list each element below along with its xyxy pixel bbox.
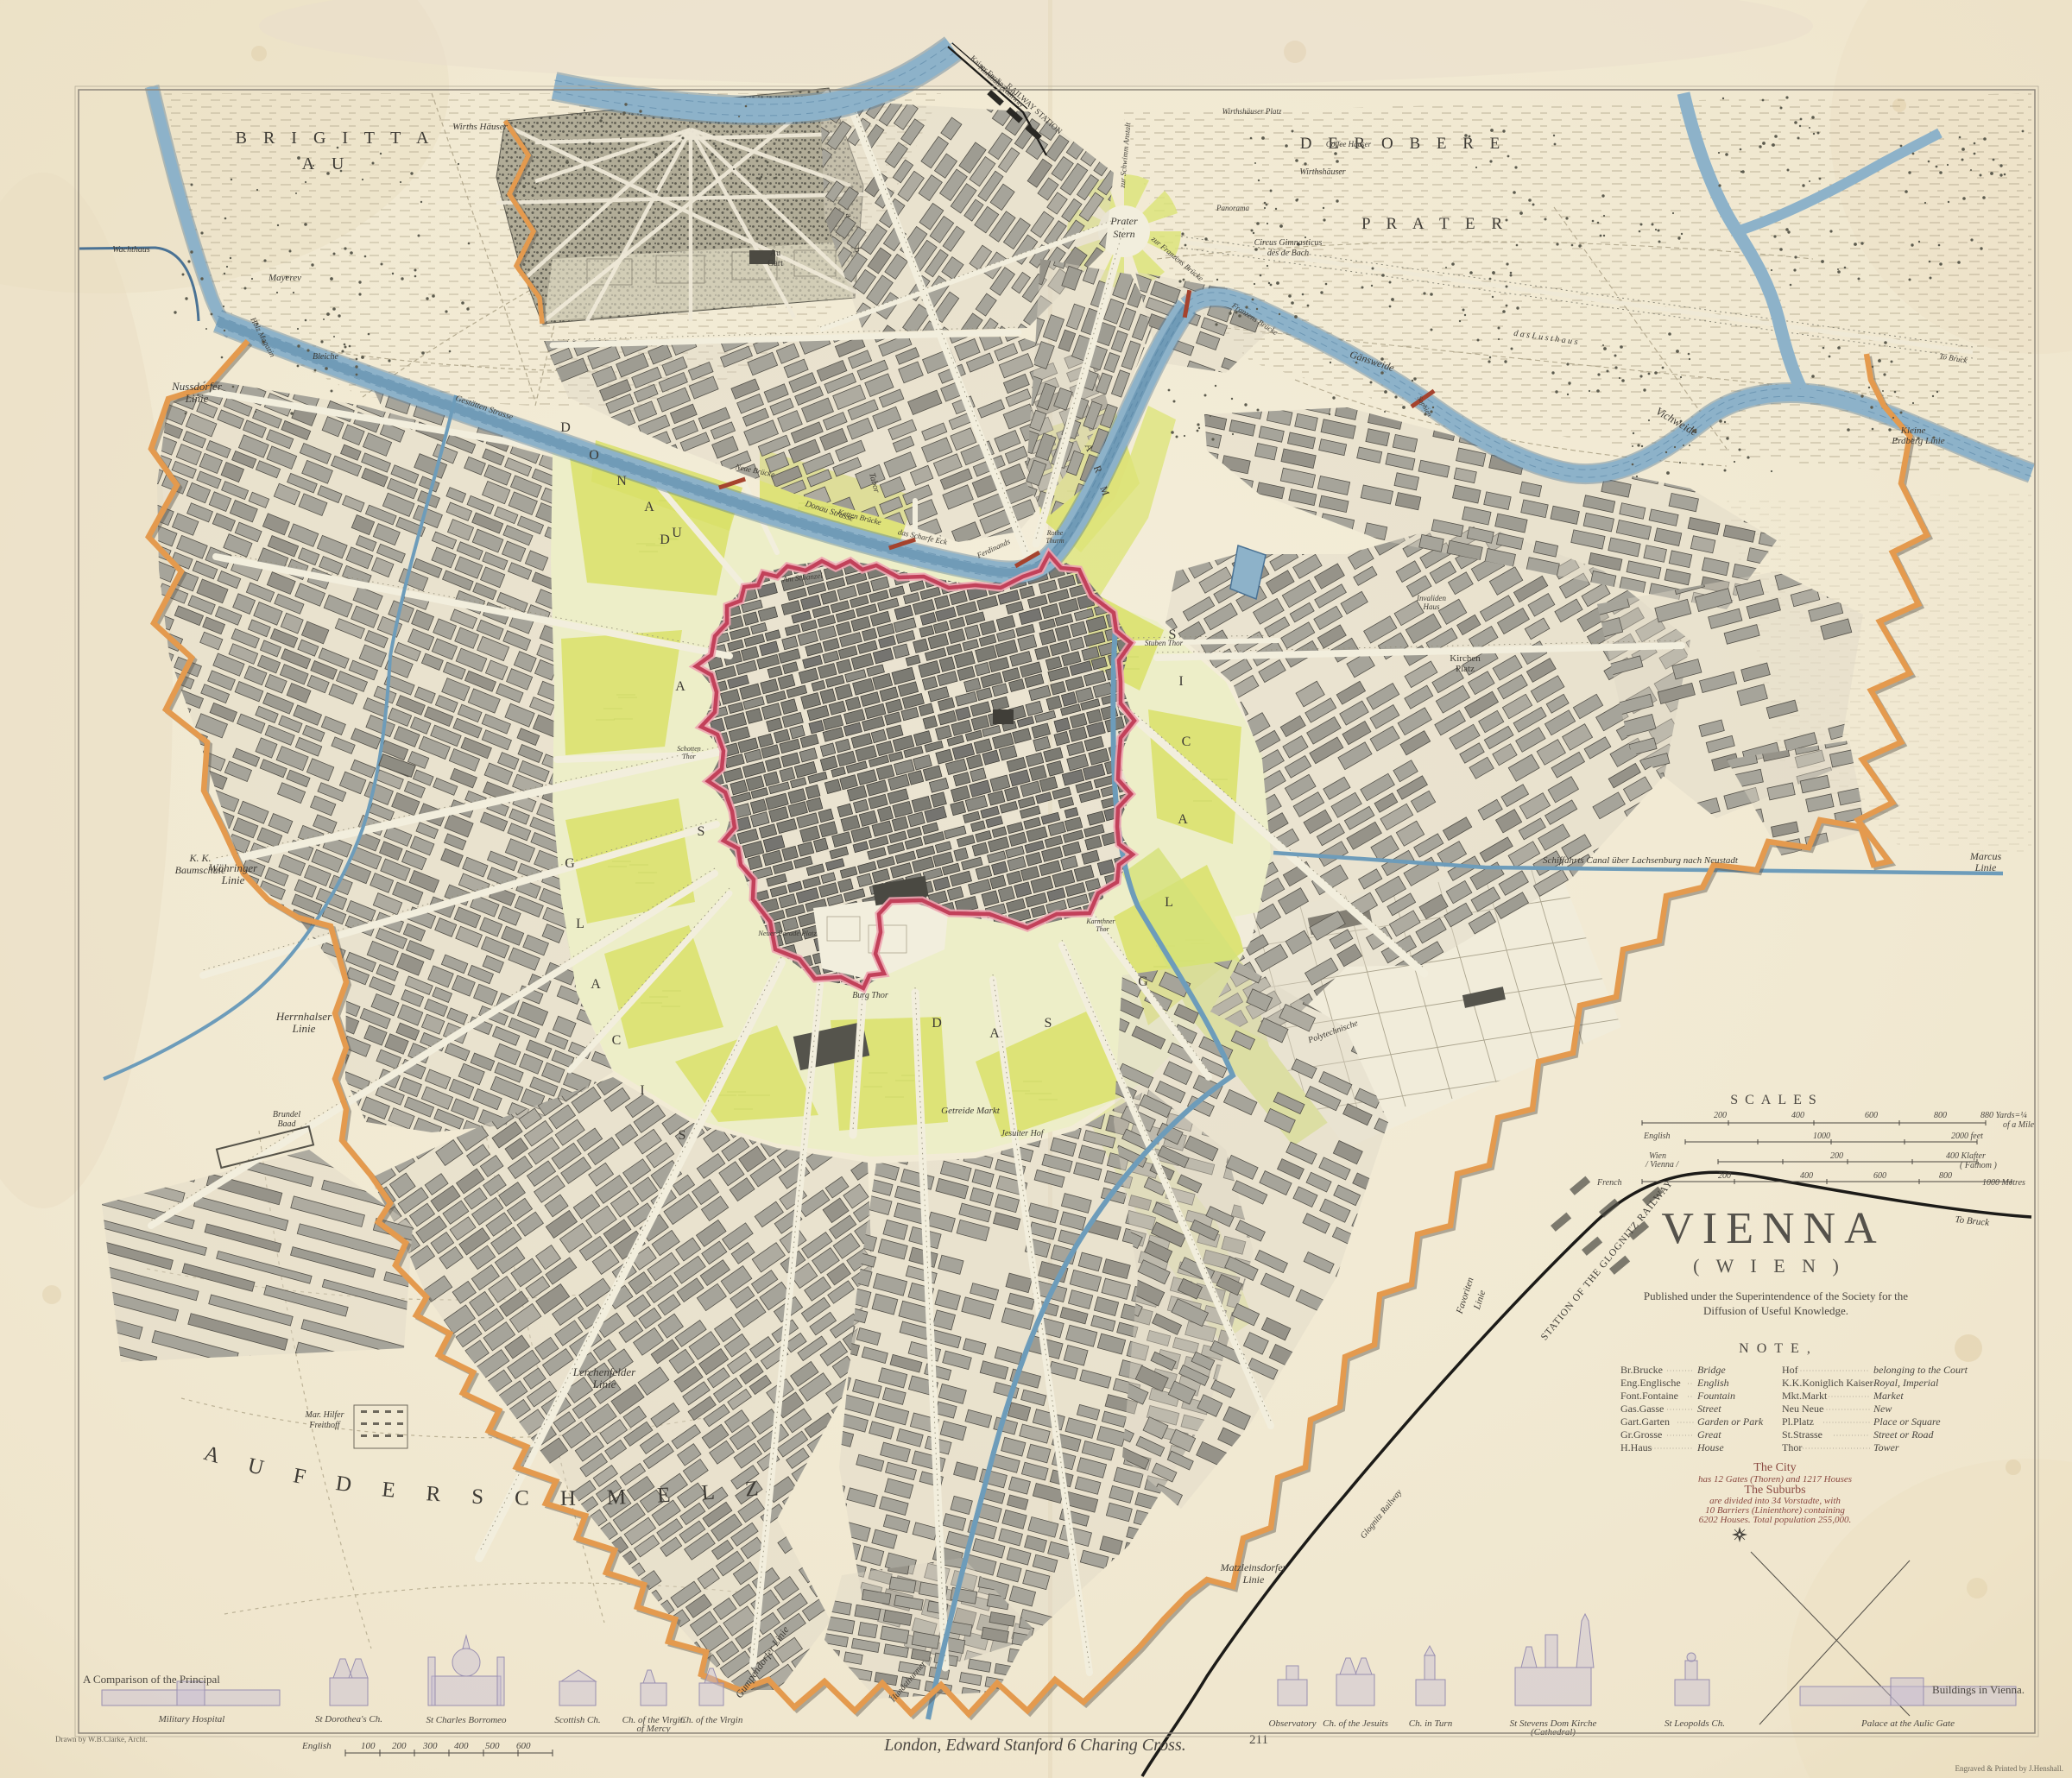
svg-text:S: S — [1045, 1016, 1052, 1031]
svg-text:of a Mile: of a Mile — [2003, 1120, 2035, 1130]
svg-text:A: A — [675, 679, 685, 694]
svg-text:Thor: Thor — [1096, 925, 1109, 933]
svg-text:Diffusion of Useful Knowledge.: Diffusion of Useful Knowledge. — [1703, 1304, 1848, 1317]
svg-text:Place or Square: Place or Square — [1873, 1415, 1941, 1428]
svg-text:The Suburbs: The Suburbs — [1744, 1484, 1805, 1497]
svg-text:Wirths Häuser: Wirths Häuser — [452, 122, 509, 132]
svg-text:Street: Street — [1697, 1403, 1721, 1415]
svg-text:500: 500 — [485, 1741, 500, 1751]
svg-text:Matzleinsdorfer: Matzleinsdorfer — [1220, 1561, 1287, 1573]
svg-text:St.Strasse: St.Strasse — [1782, 1428, 1822, 1441]
svg-text:( W I E N ): ( W I E N ) — [1693, 1255, 1845, 1277]
svg-text:Au: Au — [770, 249, 780, 258]
svg-text:L: L — [576, 917, 584, 931]
svg-text:Gart: Gart — [768, 259, 783, 268]
svg-text:Ch. in Turn: Ch. in Turn — [1409, 1718, 1453, 1729]
svg-text:Linie: Linie — [1974, 861, 1997, 873]
svg-text:Market: Market — [1873, 1390, 1904, 1402]
svg-text:U: U — [672, 526, 682, 540]
svg-text:VIENNA: VIENNA — [1661, 1204, 1885, 1253]
svg-text:I: I — [1178, 674, 1183, 689]
svg-text:Mkt.Markt: Mkt.Markt — [1782, 1390, 1828, 1402]
svg-text:A U: A U — [302, 154, 351, 173]
svg-text:Jesuiter Hof: Jesuiter Hof — [1001, 1129, 1044, 1138]
svg-text:I: I — [640, 1083, 644, 1098]
svg-text:2000 feet: 2000 feet — [1951, 1132, 1983, 1141]
svg-text:Baumschule: Baumschule — [175, 864, 226, 876]
svg-text:Herrnhalser: Herrnhalser — [275, 1010, 332, 1023]
svg-text:Nussdorfer: Nussdorfer — [171, 380, 223, 393]
svg-text:Stuben Thor: Stuben Thor — [1145, 639, 1184, 647]
svg-text:D: D — [932, 1016, 942, 1031]
svg-text:600: 600 — [516, 1741, 531, 1751]
svg-text:Ch. of the Virgin: Ch. of the Virgin — [680, 1715, 743, 1725]
svg-text:Rothe: Rothe — [1046, 529, 1064, 537]
svg-text:Coffee Häuser: Coffee Häuser — [1326, 140, 1372, 148]
svg-text:Observatory: Observatory — [1269, 1718, 1317, 1729]
svg-text:Linie: Linie — [292, 1022, 316, 1035]
svg-text:French: French — [1596, 1178, 1622, 1188]
svg-text:200: 200 — [1830, 1151, 1843, 1161]
svg-text:London, Edward Stanford 6 Char: London, Edward Stanford 6 Charing Cross. — [883, 1736, 1186, 1755]
svg-text:Lerchenfelder: Lerchenfelder — [572, 1365, 636, 1378]
svg-text:English: English — [1696, 1377, 1729, 1389]
svg-text:C: C — [612, 1033, 622, 1048]
svg-text:K.K.Koniglich Kaiser: K.K.Koniglich Kaiser — [1782, 1377, 1873, 1389]
svg-text:O: O — [589, 448, 599, 463]
svg-text:des de Bach: des de Bach — [1267, 249, 1309, 258]
svg-text:Hof: Hof — [1782, 1364, 1798, 1376]
svg-text:400: 400 — [454, 1741, 469, 1751]
svg-text:Getreide Markt: Getreide Markt — [941, 1106, 1001, 1116]
svg-text:The City: The City — [1753, 1461, 1796, 1474]
svg-text:N: N — [616, 474, 627, 489]
svg-text:400: 400 — [1791, 1111, 1804, 1120]
svg-text:Gart.Garten: Gart.Garten — [1620, 1415, 1670, 1428]
svg-text:Bridge: Bridge — [1697, 1364, 1726, 1376]
svg-text:300: 300 — [422, 1741, 438, 1751]
svg-text:Gr.Grosse: Gr.Grosse — [1620, 1428, 1662, 1441]
svg-text:St Charles Borromeo: St Charles Borromeo — [426, 1715, 507, 1725]
svg-text:Invaliden: Invaliden — [1416, 594, 1446, 602]
svg-text:of Mercy: of Mercy — [637, 1724, 671, 1734]
svg-text:S: S — [679, 1128, 686, 1143]
svg-text:Brundel: Brundel — [273, 1110, 300, 1119]
svg-text:Palace at the Aulic Gate: Palace at the Aulic Gate — [1860, 1718, 1955, 1729]
svg-text:P R A T E R: P R A T E R — [1361, 215, 1508, 233]
svg-text:Mar. Hilfer: Mar. Hilfer — [305, 1410, 344, 1420]
svg-text:D: D — [560, 420, 571, 435]
svg-text:1000: 1000 — [1813, 1132, 1830, 1141]
svg-text:Published under the Superinten: Published under the Superintendence of t… — [1644, 1289, 1908, 1302]
svg-text:C: C — [1182, 735, 1191, 749]
svg-text:S: S — [1169, 627, 1177, 642]
svg-text:Garden or Park: Garden or Park — [1697, 1415, 1764, 1428]
svg-text:100: 100 — [361, 1741, 376, 1751]
svg-text:Kleine: Kleine — [1900, 426, 1926, 436]
svg-text:Kirchen: Kirchen — [1450, 653, 1481, 664]
svg-text:G: G — [565, 856, 575, 871]
svg-text:Wirthshäuser Platz: Wirthshäuser Platz — [1222, 107, 1282, 116]
svg-text:Panorama: Panorama — [1216, 204, 1249, 212]
svg-text:S: S — [698, 824, 705, 839]
svg-text:Br.Brucke: Br.Brucke — [1620, 1364, 1663, 1376]
svg-text:A Comparison of the Principal: A Comparison of the Principal — [83, 1673, 220, 1686]
svg-text:belonging to the Court: belonging to the Court — [1873, 1364, 1968, 1376]
svg-text:NOTE,: NOTE, — [1739, 1341, 1818, 1356]
svg-text:Marcus: Marcus — [1969, 850, 2002, 862]
svg-text:Military Hospital: Military Hospital — [158, 1714, 225, 1724]
svg-text:Freithoff: Freithoff — [308, 1421, 340, 1430]
svg-text:1000 Metres: 1000 Metres — [1982, 1178, 2025, 1188]
svg-text:Tower: Tower — [1873, 1441, 1899, 1453]
svg-text:A: A — [989, 1026, 1000, 1041]
svg-text:Burg Thor: Burg Thor — [852, 991, 888, 1000]
svg-text:English: English — [1643, 1132, 1671, 1141]
svg-text:Erdberg Linie: Erdberg Linie — [1891, 436, 1944, 446]
svg-text:D: D — [660, 533, 670, 547]
svg-text:Platz: Platz — [1456, 664, 1475, 674]
svg-text:Great: Great — [1697, 1428, 1721, 1441]
svg-text:Eng.Englische: Eng.Englische — [1620, 1377, 1681, 1389]
svg-text:Font.Fontaine: Font.Fontaine — [1620, 1390, 1678, 1402]
svg-text:600: 600 — [1873, 1171, 1886, 1181]
svg-text:880 Yards=¼: 880 Yards=¼ — [1980, 1111, 2027, 1120]
svg-text:K. K.: K. K. — [188, 852, 211, 864]
svg-text:400: 400 — [1800, 1171, 1813, 1181]
svg-text:Drawn by W.B.Clarke, Archt.: Drawn by W.B.Clarke, Archt. — [55, 1735, 148, 1743]
svg-text:Wirthshäuser: Wirthshäuser — [1299, 167, 1345, 177]
svg-text:Haus: Haus — [1422, 602, 1439, 611]
svg-text:200: 200 — [392, 1741, 407, 1751]
svg-text:New: New — [1873, 1403, 1892, 1415]
svg-text:Karnthner: Karnthner — [1085, 917, 1115, 925]
svg-text:Neuer Parade Platz: Neuer Parade Platz — [757, 929, 817, 937]
svg-text:Schotten: Schotten — [677, 745, 701, 753]
svg-text:SCALES: SCALES — [1730, 1093, 1823, 1107]
svg-text:Street or Road: Street or Road — [1873, 1428, 1935, 1441]
svg-text:English: English — [301, 1741, 332, 1751]
svg-text:211: 211 — [1249, 1733, 1268, 1747]
svg-text:(Cathedral): (Cathedral) — [1531, 1727, 1576, 1737]
svg-text:600: 600 — [1865, 1111, 1878, 1120]
svg-text:Scottish Ch.: Scottish Ch. — [554, 1715, 600, 1725]
svg-text:200: 200 — [1718, 1171, 1731, 1181]
svg-text:Stern: Stern — [1113, 228, 1134, 240]
svg-text:G: G — [1138, 974, 1148, 989]
svg-text:6202 Houses. Total population: 6202 Houses. Total population 255,000. — [1699, 1515, 1852, 1525]
svg-text:St Leopolds Ch.: St Leopolds Ch. — [1665, 1718, 1725, 1729]
svg-text:800: 800 — [1934, 1111, 1947, 1120]
svg-text:Gas.Gasse: Gas.Gasse — [1620, 1403, 1664, 1415]
svg-text:400 Klafter: 400 Klafter — [1946, 1151, 1986, 1161]
svg-text:Pl.Platz: Pl.Platz — [1782, 1415, 1814, 1428]
svg-text:Thurm: Thurm — [1045, 537, 1064, 545]
svg-text:A: A — [591, 977, 601, 992]
svg-text:Schiffahrts Canal über Lachsen: Schiffahrts Canal über Lachsenburg nach … — [1543, 855, 1739, 866]
svg-text:( Fathom ): ( Fathom ) — [1960, 1161, 1997, 1170]
svg-text:Mayerev: Mayerev — [268, 273, 301, 283]
svg-text:Engraved & Printed by J.Hensha: Engraved & Printed by J.Henshall. — [1955, 1764, 2063, 1773]
svg-text:Linie: Linie — [185, 392, 209, 405]
svg-text:Linie: Linie — [592, 1378, 616, 1390]
svg-text:St Dorothea's Ch.: St Dorothea's Ch. — [315, 1714, 382, 1724]
svg-text:L: L — [1165, 895, 1173, 910]
svg-text:Thor: Thor — [682, 753, 696, 760]
svg-text:Buildings in Vienna.: Buildings in Vienna. — [1932, 1683, 2025, 1696]
svg-text:Baad: Baad — [277, 1119, 296, 1129]
svg-text:House: House — [1696, 1441, 1724, 1453]
svg-text:Wachthaus: Wachthaus — [112, 245, 150, 255]
svg-text:Neu Neue: Neu Neue — [1782, 1403, 1823, 1415]
svg-text:A: A — [644, 500, 654, 514]
svg-text:800: 800 — [1939, 1171, 1952, 1181]
svg-text:Ch. of the Jesuits: Ch. of the Jesuits — [1323, 1718, 1388, 1729]
svg-text:Royal, Imperial: Royal, Imperial — [1873, 1377, 1939, 1389]
svg-text:H.Haus: H.Haus — [1620, 1441, 1652, 1453]
svg-text:Bleiche: Bleiche — [313, 352, 339, 362]
svg-text:A: A — [1178, 812, 1188, 827]
svg-text:/ Vienna /: / Vienna / — [1645, 1160, 1679, 1170]
svg-text:B R I G I T T A: B R I G I T T A — [236, 129, 435, 148]
svg-text:200: 200 — [1714, 1111, 1727, 1120]
svg-text:Prater: Prater — [1109, 215, 1138, 227]
svg-text:Thor: Thor — [1782, 1441, 1802, 1453]
svg-text:Linie: Linie — [1242, 1573, 1265, 1586]
svg-text:Fountain: Fountain — [1696, 1390, 1735, 1402]
svg-text:Circus Gimnasticus: Circus Gimnasticus — [1254, 238, 1323, 248]
